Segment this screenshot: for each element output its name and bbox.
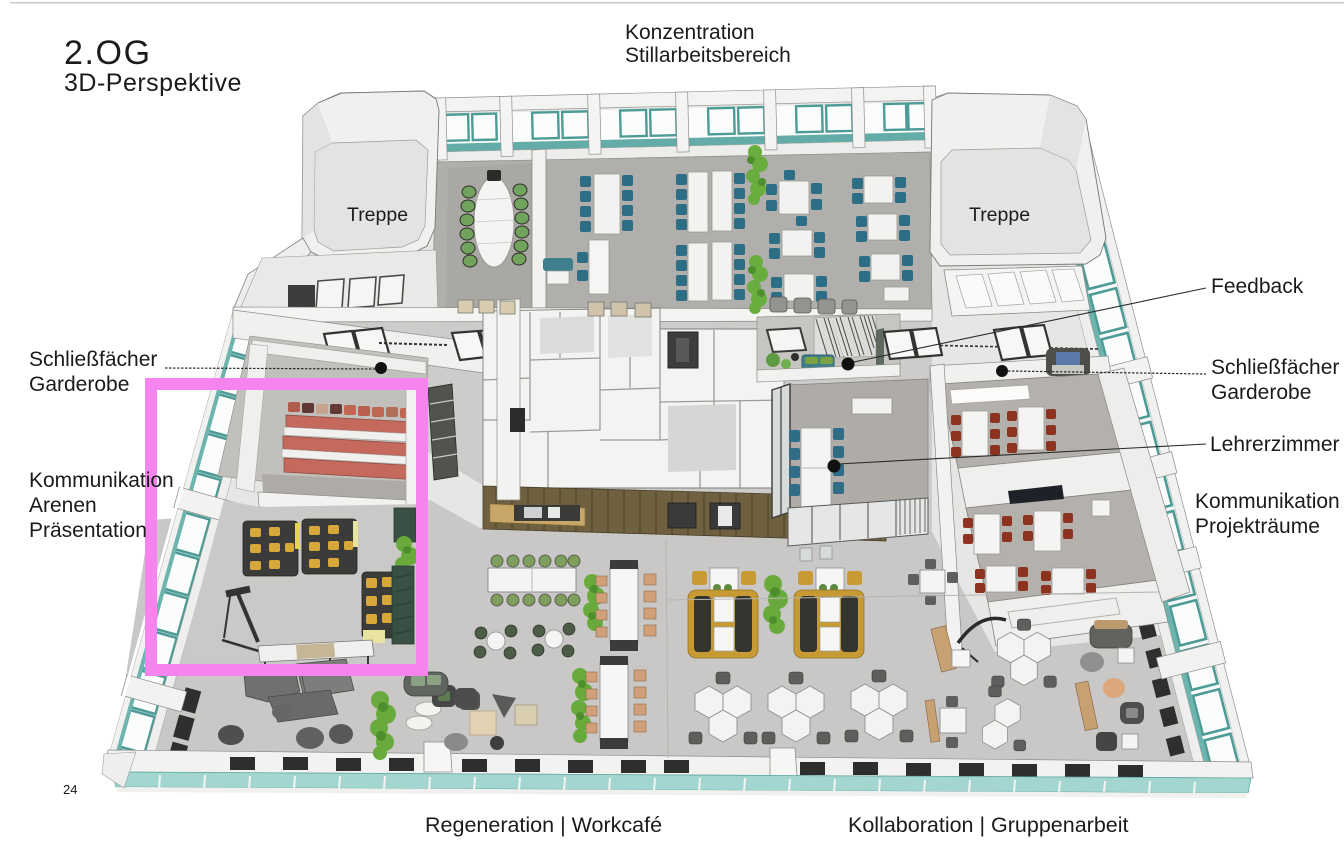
svg-text:Stillarbeitsbereich: Stillarbeitsbereich bbox=[625, 44, 791, 67]
svg-text:24: 24 bbox=[63, 782, 77, 797]
svg-text:Treppe: Treppe bbox=[969, 204, 1030, 226]
svg-text:Garderobe: Garderobe bbox=[1211, 381, 1311, 404]
svg-text:Lehrerzimmer: Lehrerzimmer bbox=[1210, 433, 1340, 456]
svg-text:Kollaboration | Gruppenarbeit: Kollaboration | Gruppenarbeit bbox=[848, 813, 1129, 837]
svg-text:Konzentration: Konzentration bbox=[625, 21, 755, 44]
svg-text:Kommunikation: Kommunikation bbox=[29, 469, 174, 492]
svg-text:Schließfächer: Schließfächer bbox=[29, 348, 157, 371]
svg-text:Garderobe: Garderobe bbox=[29, 373, 129, 396]
svg-text:2.OG: 2.OG bbox=[64, 34, 152, 72]
svg-text:Schließfächer: Schließfächer bbox=[1211, 356, 1339, 379]
svg-text:Kommunikation: Kommunikation bbox=[1195, 490, 1340, 513]
svg-text:Feedback: Feedback bbox=[1211, 275, 1304, 298]
svg-text:Regeneration | Workcafé: Regeneration | Workcafé bbox=[425, 813, 662, 837]
svg-text:Arenen: Arenen bbox=[29, 494, 97, 517]
svg-text:Präsentation: Präsentation bbox=[29, 519, 147, 542]
svg-text:Projekträume: Projekträume bbox=[1195, 515, 1320, 538]
svg-text:Treppe: Treppe bbox=[347, 204, 408, 226]
svg-text:3D-Perspektive: 3D-Perspektive bbox=[64, 69, 242, 97]
